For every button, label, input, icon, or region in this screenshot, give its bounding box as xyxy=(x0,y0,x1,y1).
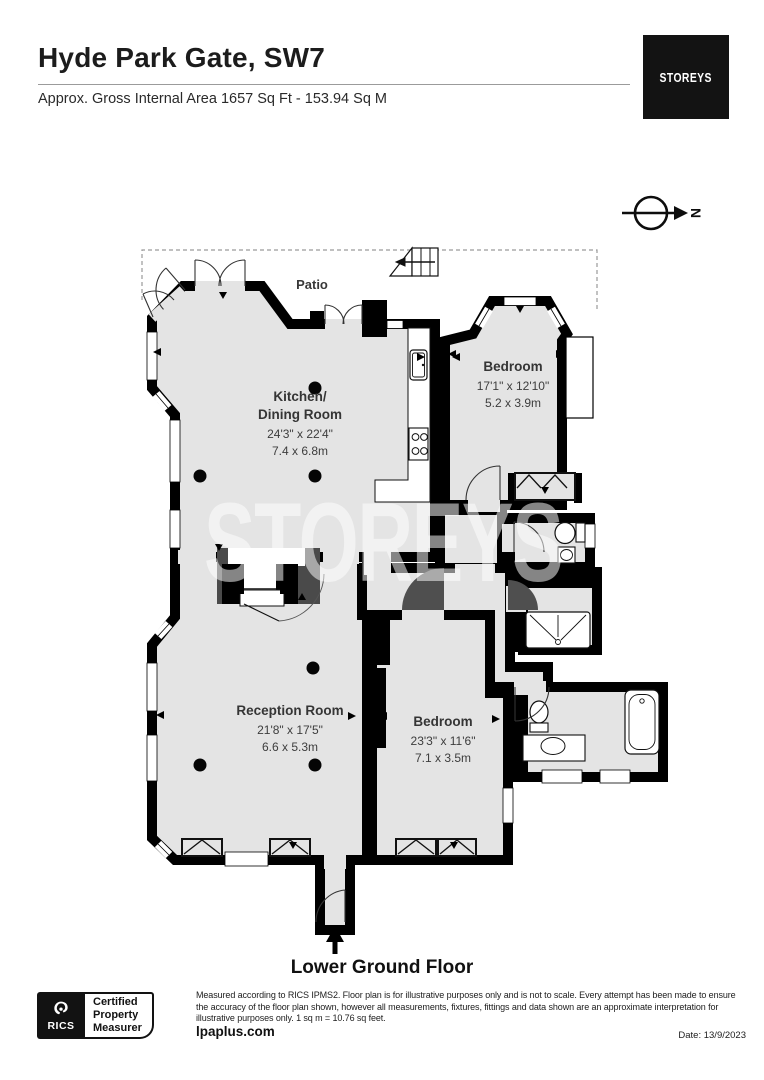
storeys-logo: STOREYS xyxy=(643,35,729,119)
north-arrow-head xyxy=(674,206,688,220)
bedroom2-dim-metric: 7.1 x 3.5m xyxy=(415,751,471,765)
rics-logo: RICS xyxy=(37,992,85,1039)
reception-dim-metric: 6.6 x 5.3m xyxy=(262,740,318,754)
rics-badge: RICS Certified Property Measurer xyxy=(37,992,154,1039)
bedroom2-label: Bedroom 23'3" x 11'6" 7.1 x 3.5m xyxy=(411,714,476,765)
bedroom1-label: Bedroom 17'1" x 12'10" 5.2 x 3.9m xyxy=(477,359,550,410)
area-subtitle: Approx. Gross Internal Area 1657 Sq Ft -… xyxy=(38,91,387,107)
hall-upper xyxy=(440,510,502,572)
rics-lion-icon xyxy=(51,1000,71,1020)
floor-title: Lower Ground Floor xyxy=(0,957,764,979)
floorplan-drawing: Patio Kitchen/ Dining Room 24'3" x 22'4"… xyxy=(140,238,764,958)
website-text: lpaplus.com xyxy=(196,1024,275,1039)
bedroom1-name: Bedroom xyxy=(483,359,542,374)
north-label: N xyxy=(688,208,704,218)
certified-property-measurer: Certified Property Measurer xyxy=(85,992,154,1039)
basin-icon xyxy=(541,738,565,755)
shower-icon xyxy=(526,612,590,648)
page-title: Hyde Park Gate, SW7 xyxy=(38,42,325,74)
kitchen-dim-metric: 7.4 x 6.8m xyxy=(272,444,328,458)
kitchen-dim-imperial: 24'3" x 22'4" xyxy=(267,427,333,441)
reception-name: Reception Room xyxy=(236,703,343,718)
bedroom2-name: Bedroom xyxy=(413,714,472,729)
north-compass-icon: N xyxy=(618,192,713,237)
bedroom2-dim-imperial: 23'3" x 11'6" xyxy=(411,734,476,748)
badge-line2: Property xyxy=(93,1009,142,1022)
reception-dim-imperial: 21'8" x 17'5" xyxy=(257,723,323,737)
toilet-icon xyxy=(555,523,575,544)
floorplan-area: Patio Kitchen/ Dining Room 24'3" x 22'4"… xyxy=(140,238,764,958)
rics-text: RICS xyxy=(47,1021,74,1032)
toilet-icon xyxy=(530,701,548,723)
badge-line3: Measurer xyxy=(93,1022,142,1035)
badge-line1: Certified xyxy=(93,996,142,1009)
floorplan-page: Hyde Park Gate, SW7 Approx. Gross Intern… xyxy=(0,0,764,1080)
date-text: Date: 13/9/2023 xyxy=(580,1030,746,1041)
bedroom1-dim-imperial: 17'1" x 12'10" xyxy=(477,379,550,393)
kitchen-name-line1: Kitchen/ xyxy=(273,389,327,404)
bathtub-icon xyxy=(625,690,659,754)
built-in-wardrobe xyxy=(566,337,593,418)
title-divider xyxy=(38,84,630,85)
bedroom1-dim-metric: 5.2 x 3.9m xyxy=(485,396,541,410)
disclaimer-text: Measured according to RICS IPMS2. Floor … xyxy=(196,990,748,1025)
kitchen-name-line2: Dining Room xyxy=(258,407,342,422)
patio-label: Patio xyxy=(296,277,328,292)
storeys-logo-text: STOREYS xyxy=(660,70,712,85)
stairs-icon xyxy=(390,248,438,276)
